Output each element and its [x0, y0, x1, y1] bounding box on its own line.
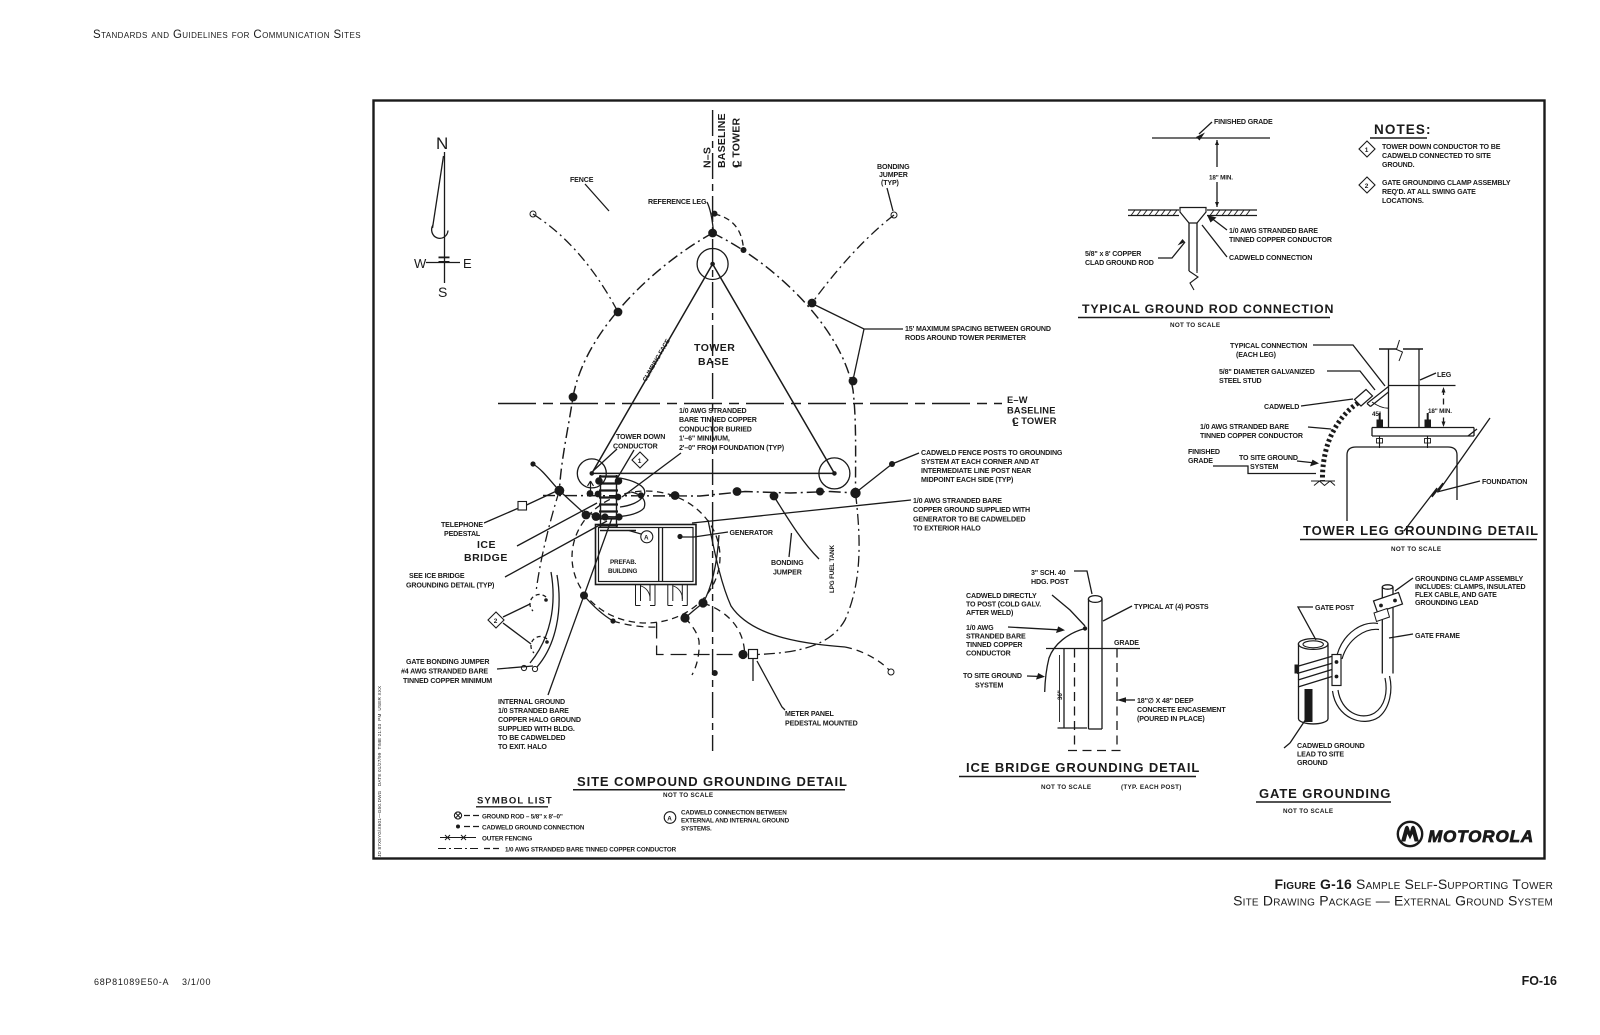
- svg-text:MOTOROLA: MOTOROLA: [1428, 827, 1534, 846]
- svg-text:TO EXTERIOR HALO: TO EXTERIOR HALO: [913, 525, 981, 533]
- svg-text:CONDUCTOR: CONDUCTOR: [966, 650, 1011, 658]
- svg-text:GATE GROUNDING CLAMP ASSEMBLY: GATE GROUNDING CLAMP ASSEMBLY: [1382, 179, 1511, 187]
- svg-text:SEE ICE BRIDGE: SEE ICE BRIDGE: [409, 572, 465, 580]
- svg-text:COPPER HALO GROUND: COPPER HALO GROUND: [498, 716, 581, 724]
- svg-text:SUPPLIED WITH BLDG.: SUPPLIED WITH BLDG.: [498, 725, 575, 733]
- svg-text:TINNED COPPER CONDUCTOR: TINNED COPPER CONDUCTOR: [1200, 432, 1303, 440]
- svg-text:TINNED COPPER MINIMUM: TINNED COPPER MINIMUM: [403, 677, 492, 685]
- svg-text:SYSTEMS.: SYSTEMS.: [681, 826, 712, 833]
- svg-text:FINISHED GRADE: FINISHED GRADE: [1214, 118, 1273, 126]
- svg-text:BONDING: BONDING: [771, 559, 804, 567]
- svg-text:JUMPER: JUMPER: [773, 569, 802, 577]
- svg-text:BASE: BASE: [698, 356, 729, 368]
- svg-text:FO-16: FO-16: [1522, 974, 1557, 988]
- svg-text:N: N: [436, 134, 448, 153]
- svg-text:BONDING: BONDING: [877, 163, 910, 171]
- svg-text:GENERATOR: GENERATOR: [730, 529, 773, 537]
- svg-text:CLIMBING FACE: CLIMBING FACE: [642, 338, 672, 383]
- svg-text:SYMBOL LIST: SYMBOL LIST: [477, 796, 553, 807]
- svg-text:TINNED COPPER CONDUCTOR: TINNED COPPER CONDUCTOR: [1229, 236, 1332, 244]
- svg-text:REFERENCE LEG: REFERENCE LEG: [648, 198, 707, 206]
- svg-text:36": 36": [1057, 690, 1064, 700]
- svg-text:AFTER WELD): AFTER WELD): [966, 609, 1014, 617]
- svg-text:INTERMEDIATE LINE POST NEAR: INTERMEDIATE LINE POST NEAR: [921, 467, 1031, 475]
- svg-text:1/0 STRANDED BARE: 1/0 STRANDED BARE: [498, 707, 569, 715]
- svg-text:LEAD TO SITE: LEAD TO SITE: [1297, 751, 1344, 759]
- svg-text:EXTERNAL AND INTERNAL GROUND: EXTERNAL AND INTERNAL GROUND: [681, 818, 790, 825]
- svg-text:CONDUCTOR BURIED: CONDUCTOR BURIED: [679, 426, 752, 434]
- svg-text:STEEL STUD: STEEL STUD: [1219, 377, 1262, 385]
- svg-text:NOT TO SCALE: NOT TO SCALE: [1391, 546, 1441, 553]
- svg-text:5/8" x 8' COPPER: 5/8" x 8' COPPER: [1085, 250, 1141, 258]
- svg-text:SITE COMPOUND GROUNDING DETAIL: SITE COMPOUND GROUNDING DETAIL: [577, 774, 848, 789]
- svg-text:2: 2: [1365, 183, 1369, 190]
- svg-text:TO EXIT. HALO: TO EXIT. HALO: [498, 743, 547, 751]
- svg-text:TO BE CADWELDED: TO BE CADWELDED: [498, 734, 565, 742]
- svg-text:METER PANEL: METER PANEL: [785, 710, 834, 718]
- svg-text:1/0 AWG: 1/0 AWG: [966, 624, 994, 632]
- svg-text:1/0 AWG STRANDED BARE: 1/0 AWG STRANDED BARE: [913, 497, 1002, 505]
- svg-text:Standards and Guidelines for: Standards and Guidelines for Communicati…: [93, 29, 361, 41]
- svg-text:(EACH LEG): (EACH LEG): [1236, 351, 1277, 359]
- svg-text:2'–0" FROM FOUNDATION (TYP): 2'–0" FROM FOUNDATION (TYP): [679, 444, 785, 452]
- svg-text:TO SITE GROUND: TO SITE GROUND: [1239, 454, 1298, 462]
- svg-text:INTERNAL GROUND: INTERNAL GROUND: [498, 698, 565, 706]
- svg-text:GROUND.: GROUND.: [1382, 161, 1415, 169]
- svg-text:FOUNDATION: FOUNDATION: [1482, 478, 1527, 486]
- svg-text:18" MIN.: 18" MIN.: [1428, 408, 1452, 415]
- svg-text:1/0 AWG STRANDED: 1/0 AWG STRANDED: [679, 407, 747, 415]
- svg-text:GRADE: GRADE: [1188, 457, 1213, 465]
- svg-text:1/0 AWG STRANDED BARE TINNED C: 1/0 AWG STRANDED BARE TINNED COPPER COND…: [505, 847, 677, 854]
- svg-text:HDG. POST: HDG. POST: [1031, 578, 1069, 586]
- svg-text:1: 1: [638, 458, 642, 465]
- svg-text:(TYP): (TYP): [881, 179, 900, 187]
- svg-text:15' MAXIMUM SPACING BETWEEN GR: 15' MAXIMUM SPACING BETWEEN GROUND: [905, 325, 1051, 333]
- svg-text:W: W: [414, 256, 427, 271]
- svg-text:TOWER DOWN: TOWER DOWN: [616, 433, 665, 441]
- svg-text:BARE TINNED COPPER: BARE TINNED COPPER: [679, 416, 757, 424]
- svg-text:E: E: [463, 256, 472, 271]
- svg-text:BASELINE: BASELINE: [1007, 406, 1056, 416]
- svg-text:STRANDED BARE: STRANDED BARE: [966, 633, 1026, 641]
- svg-text:SYSTEM: SYSTEM: [1250, 463, 1279, 471]
- svg-text:GATE BONDING JUMPER: GATE BONDING JUMPER: [406, 658, 489, 666]
- svg-text:TINNED COPPER: TINNED COPPER: [966, 641, 1022, 649]
- svg-text:A: A: [644, 535, 649, 542]
- svg-text:Site Drawing Package — Externa: Site Drawing Package — External Ground S…: [1233, 893, 1553, 909]
- svg-text:18"∅ X 48" DEEP: 18"∅ X 48" DEEP: [1137, 697, 1194, 705]
- svg-text:TYPICAL GROUND ROD CONNECTION: TYPICAL GROUND ROD CONNECTION: [1082, 302, 1334, 316]
- svg-text:CL TOWER: CL TOWER: [731, 118, 745, 168]
- svg-text:1/0 AWG STRANDED BARE: 1/0 AWG STRANDED BARE: [1200, 423, 1289, 431]
- svg-text:Figure G-16 Sample Self-Suppo: Figure G-16 Sample Self-Supporting Tower: [1275, 876, 1554, 892]
- svg-text:NOT TO SCALE: NOT TO SCALE: [663, 792, 713, 799]
- svg-text:CL TOWER: CL TOWER: [1012, 416, 1057, 428]
- svg-text:PEDESTAL: PEDESTAL: [444, 530, 481, 538]
- svg-text:1/0 AWG STRANDED BARE: 1/0 AWG STRANDED BARE: [1229, 227, 1318, 235]
- svg-text:N–S: N–S: [702, 147, 714, 168]
- svg-text:CONDUCTOR: CONDUCTOR: [613, 443, 658, 451]
- svg-text:LPG FUEL TANK: LPG FUEL TANK: [829, 545, 836, 593]
- svg-text:RODS AROUND TOWER PERIMETER: RODS AROUND TOWER PERIMETER: [905, 334, 1026, 342]
- svg-text:(POURED IN PLACE): (POURED IN PLACE): [1137, 715, 1205, 723]
- svg-text:GATE GROUNDING: GATE GROUNDING: [1259, 786, 1391, 801]
- svg-text:PEDESTAL MOUNTED: PEDESTAL MOUNTED: [785, 720, 858, 728]
- svg-text:FENCE: FENCE: [570, 176, 594, 184]
- svg-text:TYPICAL CONNECTION: TYPICAL CONNECTION: [1230, 342, 1307, 350]
- svg-text:JD 87X5YG\X601—G50.DWG DATE: JD 87X5YG\X601—G50.DWG DATE 01/27/99 TIM…: [377, 686, 382, 857]
- svg-text:SYSTEM: SYSTEM: [975, 682, 1004, 690]
- svg-text:#4 AWG STRANDED BARE: #4 AWG STRANDED BARE: [401, 668, 488, 676]
- svg-text:GRADE: GRADE: [1114, 639, 1139, 647]
- svg-text:ICE BRIDGE GROUNDING DETAIL: ICE BRIDGE GROUNDING DETAIL: [966, 760, 1200, 775]
- svg-text:JUMPER: JUMPER: [879, 171, 908, 179]
- svg-text:GROUND: GROUND: [1297, 759, 1328, 767]
- svg-text:(TYP. EACH POST): (TYP. EACH POST): [1121, 784, 1182, 791]
- svg-text:68P81089E50-A 3/1/00: 68P81089E50-A 3/1/00: [94, 977, 211, 987]
- svg-text:PREFAB.: PREFAB.: [610, 559, 637, 566]
- svg-text:5/8" DIAMETER GALVANIZED: 5/8" DIAMETER GALVANIZED: [1219, 368, 1315, 376]
- svg-text:3" SCH. 40: 3" SCH. 40: [1031, 569, 1066, 577]
- svg-text:BRIDGE: BRIDGE: [464, 552, 508, 564]
- svg-text:ICE: ICE: [477, 539, 496, 551]
- svg-text:TYPICAL AT (4) POSTS: TYPICAL AT (4) POSTS: [1134, 603, 1209, 611]
- svg-text:FINISHED: FINISHED: [1188, 448, 1220, 456]
- svg-text:CADWELD: CADWELD: [1264, 403, 1299, 411]
- svg-text:GATE FRAME: GATE FRAME: [1415, 632, 1460, 640]
- svg-text:E–W: E–W: [1007, 395, 1028, 405]
- svg-text:TELEPHONE: TELEPHONE: [441, 521, 483, 529]
- svg-text:FLEX CABLE, AND GATE: FLEX CABLE, AND GATE: [1415, 591, 1497, 599]
- svg-text:OUTER FENCING: OUTER FENCING: [482, 836, 532, 843]
- svg-text:NOT TO SCALE: NOT TO SCALE: [1283, 808, 1333, 815]
- svg-text:TOWER LEG GROUNDING DETAIL: TOWER LEG GROUNDING DETAIL: [1303, 523, 1539, 538]
- svg-text:GROUNDING CLAMP ASSEMBLY: GROUNDING CLAMP ASSEMBLY: [1415, 575, 1523, 583]
- svg-text:CLAD GROUND ROD: CLAD GROUND ROD: [1085, 259, 1154, 267]
- svg-text:CADWELD CONNECTION: CADWELD CONNECTION: [1229, 254, 1312, 262]
- svg-text:NOT TO SCALE: NOT TO SCALE: [1170, 322, 1220, 329]
- svg-text:MIDPOINT EACH SIDE (TYP): MIDPOINT EACH SIDE (TYP): [921, 476, 1014, 484]
- svg-text:TO POST (COLD GALV.: TO POST (COLD GALV.: [966, 601, 1041, 609]
- svg-text:CADWELD GROUND CONNECTION: CADWELD GROUND CONNECTION: [482, 825, 585, 832]
- svg-text:TO SITE GROUND: TO SITE GROUND: [963, 672, 1022, 680]
- svg-text:NOT TO SCALE: NOT TO SCALE: [1041, 784, 1091, 791]
- svg-text:REQ'D. AT ALL SWING GATE: REQ'D. AT ALL SWING GATE: [1382, 188, 1476, 196]
- svg-text:TOWER DOWN CONDUCTOR TO BE: TOWER DOWN CONDUCTOR TO BE: [1382, 143, 1501, 151]
- svg-text:CADWELD DIRECTLY: CADWELD DIRECTLY: [966, 592, 1037, 600]
- svg-text:CADWELD CONNECTION BETWEEN: CADWELD CONNECTION BETWEEN: [681, 810, 787, 817]
- svg-text:18" MIN.: 18" MIN.: [1209, 175, 1233, 182]
- svg-text:LOCATIONS.: LOCATIONS.: [1382, 197, 1424, 205]
- svg-text:TOWER: TOWER: [694, 342, 735, 354]
- svg-text:2: 2: [494, 618, 498, 625]
- svg-text:S: S: [438, 284, 447, 300]
- svg-text:INCLUDES: CLAMPS, INSULATED: INCLUDES: CLAMPS, INSULATED: [1415, 583, 1526, 591]
- svg-text:COPPER GROUND SUPPLIED WITH: COPPER GROUND SUPPLIED WITH: [913, 506, 1030, 514]
- svg-text:1'–6" MINIMUM,: 1'–6" MINIMUM,: [679, 435, 730, 443]
- svg-text:GATE POST: GATE POST: [1315, 604, 1355, 612]
- svg-text:CADWELD FENCE POSTS TO GROUNDI: CADWELD FENCE POSTS TO GROUNDING: [921, 449, 1063, 457]
- svg-text:CADWELD GROUND: CADWELD GROUND: [1297, 742, 1365, 750]
- svg-text:SYSTEM AT EACH CORNER AND AT: SYSTEM AT EACH CORNER AND AT: [921, 458, 1040, 466]
- svg-text:GROUNDING LEAD: GROUNDING LEAD: [1415, 599, 1478, 607]
- svg-text:LEG: LEG: [1437, 371, 1452, 379]
- svg-text:BASELINE: BASELINE: [716, 113, 728, 168]
- svg-text:CADWELD CONNECTED TO SITE: CADWELD CONNECTED TO SITE: [1382, 152, 1491, 160]
- svg-text:A: A: [667, 815, 672, 822]
- svg-text:NOTES:: NOTES:: [1374, 122, 1432, 137]
- svg-text:BUILDING: BUILDING: [608, 568, 637, 575]
- svg-text:GROUNDING DETAIL (TYP): GROUNDING DETAIL (TYP): [406, 582, 495, 590]
- svg-text:CONCRETE ENCASEMENT: CONCRETE ENCASEMENT: [1137, 706, 1226, 714]
- svg-text:1: 1: [1365, 147, 1369, 154]
- svg-text:GROUND ROD – 5/8" x 8'–0": GROUND ROD – 5/8" x 8'–0": [482, 814, 563, 821]
- svg-text:GENERATOR TO BE CADWELDED: GENERATOR TO BE CADWELDED: [913, 516, 1026, 524]
